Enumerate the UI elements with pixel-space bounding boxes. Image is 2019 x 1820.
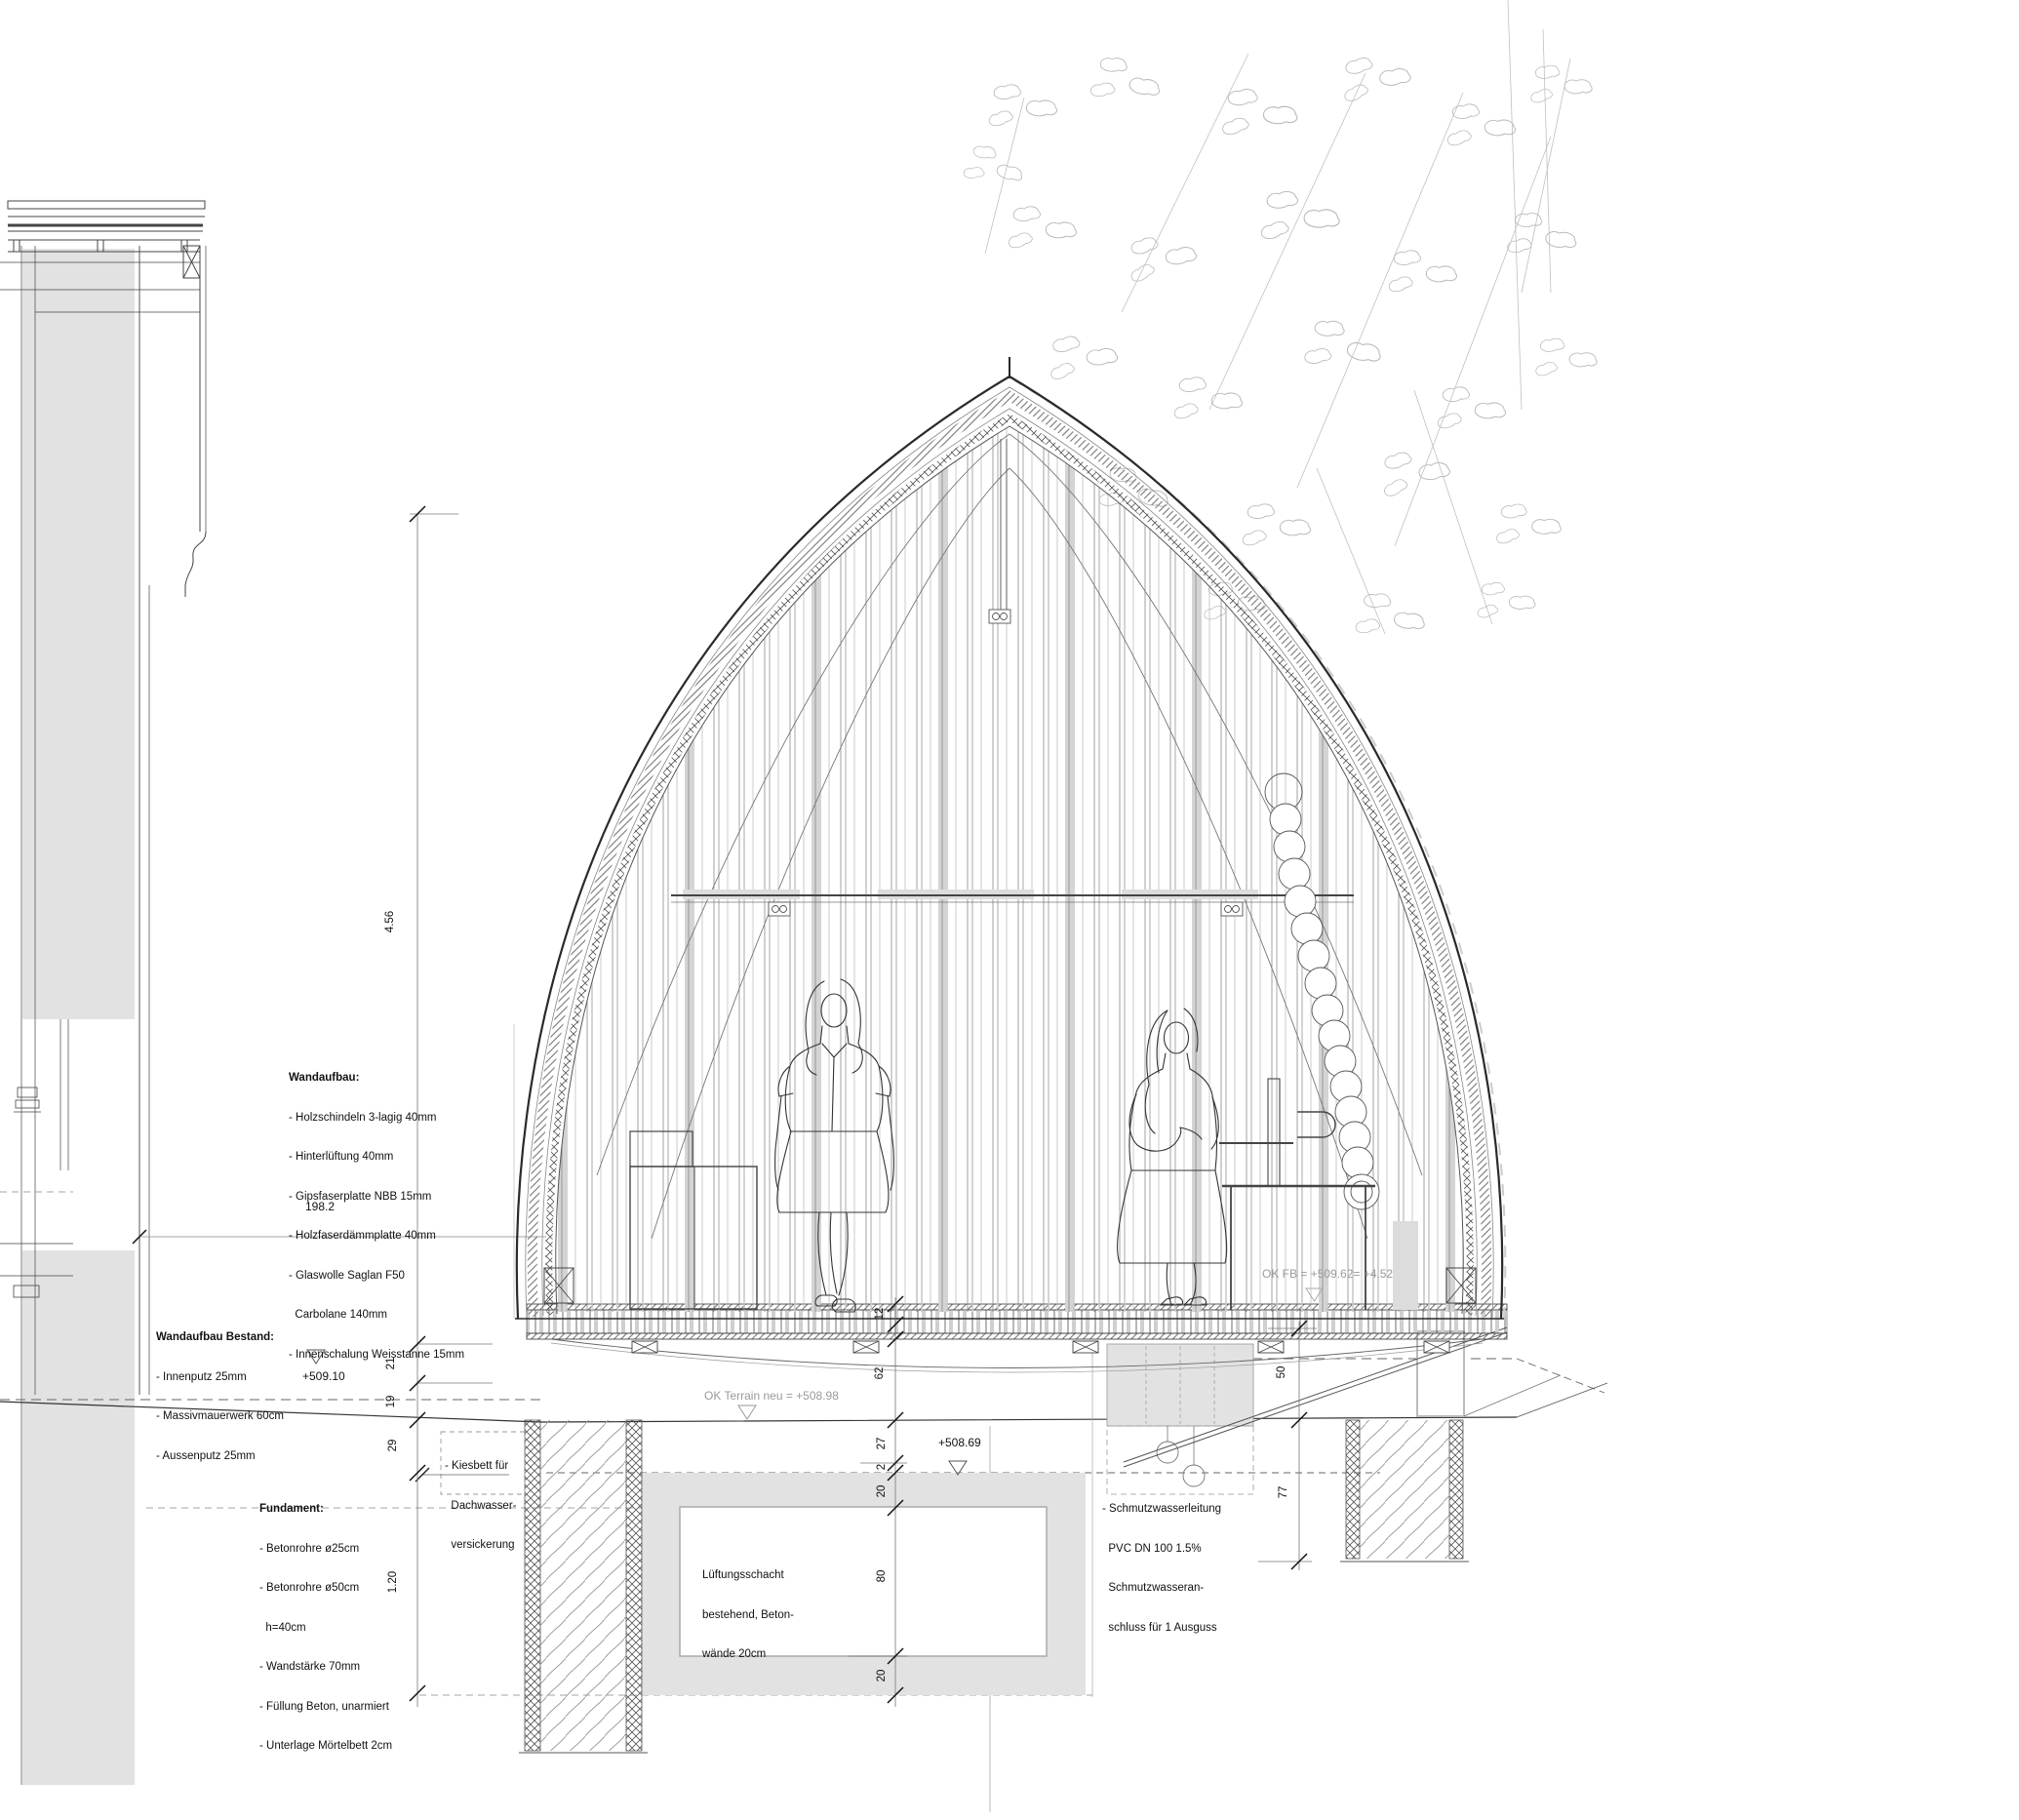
dim-198-2: 198.2 — [305, 1200, 335, 1213]
dim-2: 2 — [876, 1464, 888, 1470]
level-ok-fb: OK FB = +509.62= +4.52 — [1262, 1267, 1393, 1281]
level-ok-terrain: OK Terrain neu = +508.98 — [704, 1389, 839, 1403]
gravel-bed-note: - Kiesbett für Dachwasser- versickerung — [445, 1434, 517, 1565]
foundation-pier-left — [519, 1420, 648, 1753]
wall-buildup-title: Wandaufbau: — [289, 1072, 464, 1086]
arch-interior — [551, 419, 1468, 1312]
dim-62: 62 — [874, 1367, 886, 1380]
dim-27: 27 — [876, 1438, 888, 1450]
dim-19: 19 — [385, 1396, 397, 1408]
dim-20b: 20 — [876, 1670, 888, 1682]
architectural-section-sheet: Wandaufbau: - Holzschindeln 3-lagig 40mm… — [0, 0, 2019, 1820]
foundation-pier-right — [1340, 1420, 1469, 1562]
dim-77: 77 — [1278, 1486, 1289, 1499]
sewage-pipe-note: - Schmutzwasserleitung PVC DN 100 1.5% S… — [1102, 1477, 1221, 1648]
foundation-note: Fundament: - Betonrohre ø25cm - Betonroh… — [259, 1477, 392, 1766]
dim-1-20: 1.20 — [387, 1571, 399, 1593]
timber-floor — [527, 1304, 1507, 1372]
dim-50: 50 — [1276, 1366, 1287, 1379]
level-509-10: +509.10 — [302, 1369, 345, 1383]
ventilation-shaft-note: Lüftungsschacht bestehend, Beton- wände … — [702, 1543, 794, 1675]
dim-4-56: 4.56 — [384, 911, 396, 932]
dim-20a: 20 — [876, 1485, 888, 1498]
dim-21: 21 — [385, 1358, 397, 1370]
existing-wall-buildup-note: Wandaufbau Bestand: - Innenputz 25mm - M… — [156, 1305, 284, 1477]
dim-80: 80 — [876, 1570, 888, 1583]
dim-29: 29 — [387, 1440, 399, 1452]
dim-12: 12 — [874, 1308, 886, 1321]
existing-building-section — [0, 201, 206, 1785]
level-508-69: +508.69 — [938, 1436, 981, 1449]
